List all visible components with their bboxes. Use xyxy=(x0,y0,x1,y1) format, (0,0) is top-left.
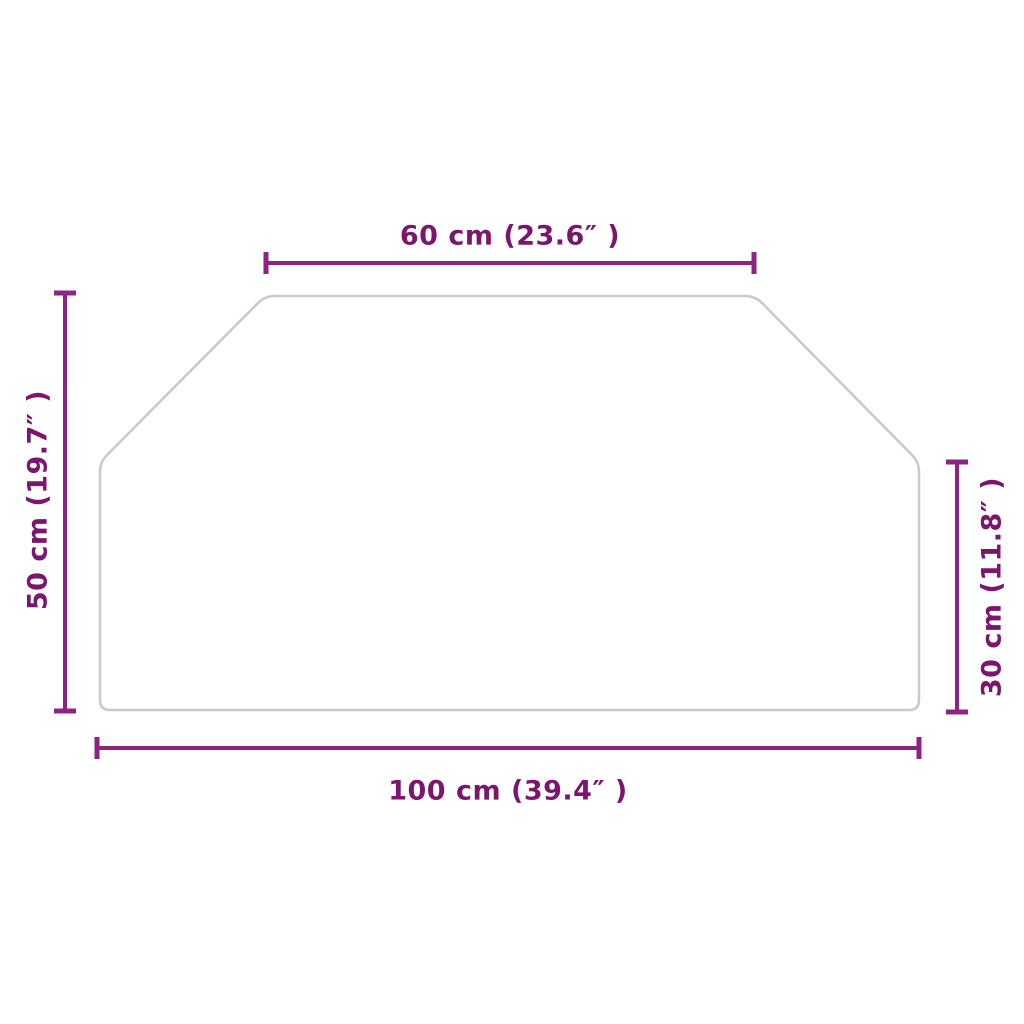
dimension-diagram: 60 cm (23.6″ ) 100 cm (39.4″ ) 50 cm (19… xyxy=(0,0,1024,1024)
dimension-label-right-height: 30 cm (11.8″ ) xyxy=(977,477,1008,697)
dimension-line-right-height xyxy=(946,462,968,712)
dimension-line-bottom-width xyxy=(97,737,919,759)
dimension-label-bottom-width: 100 cm (39.4″ ) xyxy=(388,776,628,807)
glass-panel-outline xyxy=(100,296,919,710)
dimension-line-top-width xyxy=(266,252,754,274)
dimension-line-left-height xyxy=(54,293,76,711)
dimension-label-left-height: 50 cm (19.7″ ) xyxy=(23,390,54,610)
dimension-label-top-width: 60 cm (23.6″ ) xyxy=(400,221,620,252)
diagram-graphics xyxy=(0,0,1024,1024)
